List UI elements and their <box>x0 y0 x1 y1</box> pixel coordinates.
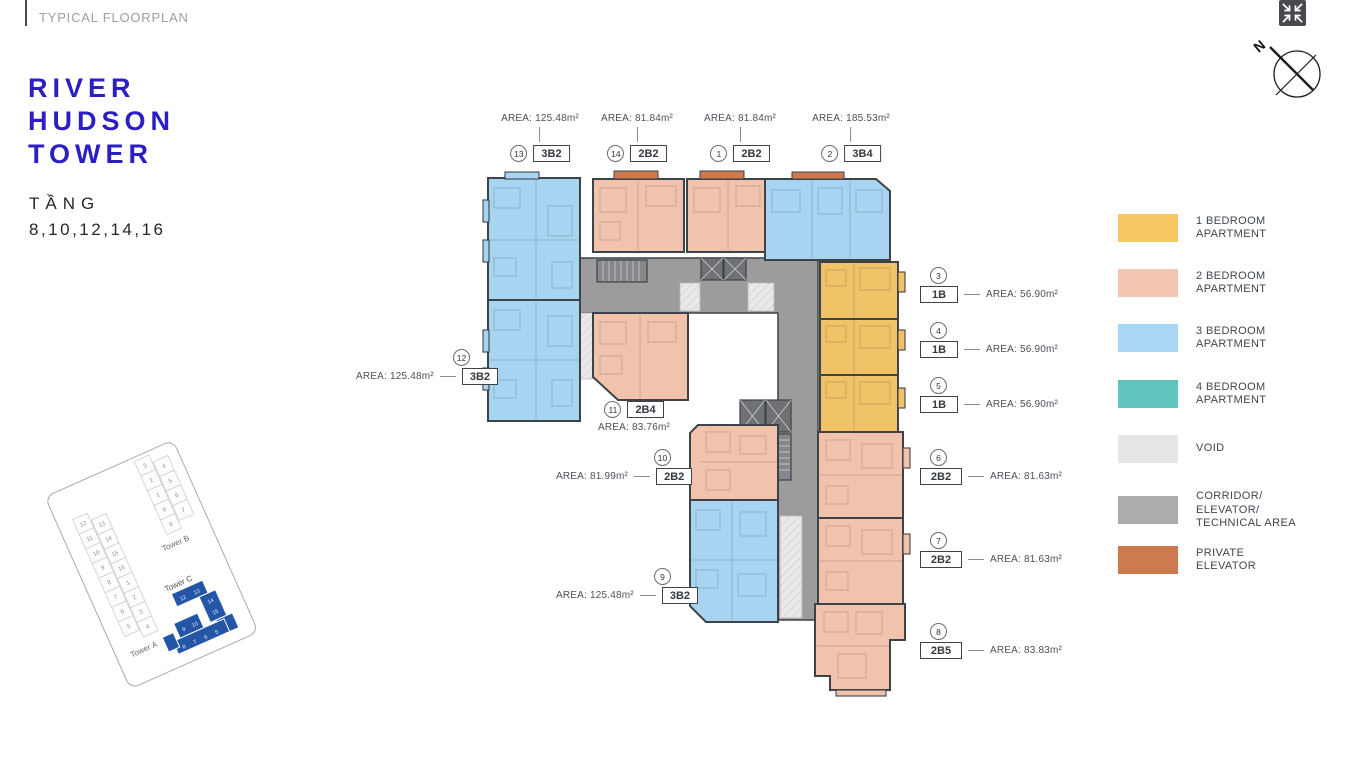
unit-area-9: AREA: 125.48m² <box>556 590 634 601</box>
legend-item-4br: 4 BEDROOM APARTMENT <box>1118 380 1266 408</box>
connector-line <box>640 595 656 596</box>
legend-item-corridor: CORRIDOR/ ELEVATOR/ TECHNICAL AREA <box>1118 490 1296 531</box>
unit-label-8: 8 2B5AREA: 83.83m² <box>920 623 1062 659</box>
legend-swatch-1br <box>1118 214 1178 242</box>
header-divider <box>25 0 27 26</box>
unit-area-8: AREA: 83.83m² <box>990 645 1062 656</box>
unit-code-11: 2B4 <box>627 401 663 418</box>
legend-label-2br: 2 BEDROOM APARTMENT <box>1196 270 1266 297</box>
slide: TYPICAL FLOORPLAN RIVER HUDSON TOWER TẦN… <box>0 0 1366 768</box>
unit-code-14: 2B2 <box>630 145 666 162</box>
unit-area-12: AREA: 125.48m² <box>356 371 434 382</box>
plan-unit-4 <box>820 319 905 375</box>
connector-line <box>440 376 456 377</box>
unit-number-3: 3 <box>930 267 947 284</box>
unit-area-13: AREA: 125.48m² <box>501 113 579 124</box>
floors-value: 8,10,12,14,16 <box>29 220 165 240</box>
unit-code-3: 1B <box>920 286 958 303</box>
unit-code-5: 1B <box>920 396 958 413</box>
unit-number-9: 9 <box>654 568 671 585</box>
unit-number-4: 4 <box>930 322 947 339</box>
connector-line <box>968 650 984 651</box>
connector-line <box>851 127 852 142</box>
legend-item-void: VOID <box>1118 435 1225 463</box>
project-title-line3: TOWER <box>28 138 175 171</box>
legend-item-private-elevator: PRIVATE ELEVATOR <box>1118 546 1256 574</box>
plan-unit-11 <box>593 313 688 400</box>
unit-number-8: 8 <box>930 623 947 640</box>
unit-label-6: 6 2B2AREA: 81.63m² <box>920 449 1062 485</box>
unit-label-7: 7 2B2AREA: 81.63m² <box>920 532 1062 568</box>
unit-number-7: 7 <box>930 532 947 549</box>
plan-unit-14 <box>593 179 684 252</box>
unit-label-10: 10 AREA: 81.99m²2B2 <box>556 449 692 485</box>
project-title-line2: HUDSON <box>28 105 175 138</box>
unit-code-1: 2B2 <box>733 145 769 162</box>
site-minimap: 12 11 10 9 8 7 6 5 13 14 15 16 1 2 3 4 T… <box>30 420 300 710</box>
unit-code-6: 2B2 <box>920 468 962 485</box>
connector-line <box>964 404 980 405</box>
unit-label-3: 3 1BAREA: 56.90m² <box>920 267 1058 303</box>
project-title: RIVER HUDSON TOWER <box>28 72 175 171</box>
plan-unit-1 <box>687 179 765 252</box>
unit-label-13: AREA: 125.48m² 133B2 <box>501 113 579 162</box>
unit-number-13: 13 <box>510 145 527 162</box>
collapse-arrows-icon <box>1279 0 1306 26</box>
unit-area-5: AREA: 56.90m² <box>986 399 1058 410</box>
unit-area-4: AREA: 56.90m² <box>986 344 1058 355</box>
unit-code-7: 2B2 <box>920 551 962 568</box>
floors-label: TẦNG <box>29 194 100 214</box>
unit-label-2: AREA: 185.53m² 23B4 <box>812 113 890 162</box>
legend-swatch-void <box>1118 435 1178 463</box>
legend-swatch-3br <box>1118 324 1178 352</box>
legend-label-3br: 3 BEDROOM APARTMENT <box>1196 325 1266 352</box>
plan-unit-9 <box>690 500 778 622</box>
unit-code-12: 3B2 <box>462 368 498 385</box>
legend-label-4br: 4 BEDROOM APARTMENT <box>1196 381 1266 408</box>
plan-unit-3 <box>820 262 905 319</box>
connector-line <box>968 476 984 477</box>
connector-line <box>636 127 637 142</box>
unit-code-2: 3B4 <box>844 145 880 162</box>
unit-code-8: 2B5 <box>920 642 962 659</box>
legend-swatch-2br <box>1118 269 1178 297</box>
legend-item-2br: 2 BEDROOM APARTMENT <box>1118 269 1266 297</box>
connector-line <box>968 559 984 560</box>
legend-item-1br: 1 BEDROOM APARTMENT <box>1118 214 1266 242</box>
legend-label-void: VOID <box>1196 442 1225 456</box>
unit-area-3: AREA: 56.90m² <box>986 289 1058 300</box>
unit-code-4: 1B <box>920 341 958 358</box>
plan-unit-2 <box>765 179 890 260</box>
unit-area-10: AREA: 81.99m² <box>556 471 628 482</box>
unit-number-14: 14 <box>607 145 624 162</box>
unit-label-12: 12 AREA: 125.48m²3B2 <box>356 349 498 385</box>
collapse-fullscreen-icon[interactable] <box>1279 0 1306 26</box>
plan-unit-5 <box>820 375 905 432</box>
unit-label-5: 5 1BAREA: 56.90m² <box>920 377 1058 413</box>
unit-area-6: AREA: 81.63m² <box>990 471 1062 482</box>
unit-label-11: 112B4 AREA: 83.76m² <box>598 401 670 433</box>
unit-number-1: 1 <box>710 145 727 162</box>
connector-line <box>964 294 980 295</box>
unit-code-13: 3B2 <box>533 145 569 162</box>
unit-label-4: 4 1BAREA: 56.90m² <box>920 322 1058 358</box>
unit-number-6: 6 <box>930 449 947 466</box>
plan-private-elevators <box>614 171 844 179</box>
legend-swatch-4br <box>1118 380 1178 408</box>
unit-area-14: AREA: 81.84m² <box>601 113 673 124</box>
unit-label-9: 9 AREA: 125.48m²3B2 <box>556 568 698 604</box>
unit-code-10: 2B2 <box>656 468 692 485</box>
unit-area-11: AREA: 83.76m² <box>598 422 670 433</box>
unit-area-2: AREA: 185.53m² <box>812 113 890 124</box>
legend-label-1br: 1 BEDROOM APARTMENT <box>1196 215 1266 242</box>
unit-area-1: AREA: 81.84m² <box>704 113 776 124</box>
plan-unit-8 <box>815 604 905 696</box>
unit-label-14: AREA: 81.84m² 142B2 <box>601 113 673 162</box>
compass-north-label: N <box>1250 37 1268 56</box>
unit-number-11: 11 <box>604 401 621 418</box>
connector-line <box>739 127 740 142</box>
unit-area-7: AREA: 81.63m² <box>990 554 1062 565</box>
unit-number-12: 12 <box>453 349 470 366</box>
legend: 1 BEDROOM APARTMENT 2 BEDROOM APARTMENT … <box>1118 214 1358 614</box>
unit-code-9: 3B2 <box>662 587 698 604</box>
unit-number-10: 10 <box>654 449 671 466</box>
unit-label-1: AREA: 81.84m² 12B2 <box>704 113 776 162</box>
legend-swatch-corridor <box>1118 496 1178 524</box>
legend-label-private-elevator: PRIVATE ELEVATOR <box>1196 547 1256 574</box>
legend-swatch-private-elevator <box>1118 546 1178 574</box>
legend-label-corridor: CORRIDOR/ ELEVATOR/ TECHNICAL AREA <box>1196 490 1296 531</box>
connector-line <box>964 349 980 350</box>
connector-line <box>540 127 541 142</box>
project-title-line1: RIVER <box>28 72 175 105</box>
unit-number-2: 2 <box>821 145 838 162</box>
unit-number-5: 5 <box>930 377 947 394</box>
connector-line <box>634 476 650 477</box>
compass-icon: N <box>1240 30 1360 130</box>
legend-item-3br: 3 BEDROOM APARTMENT <box>1118 324 1266 352</box>
page-title: TYPICAL FLOORPLAN <box>39 10 189 25</box>
